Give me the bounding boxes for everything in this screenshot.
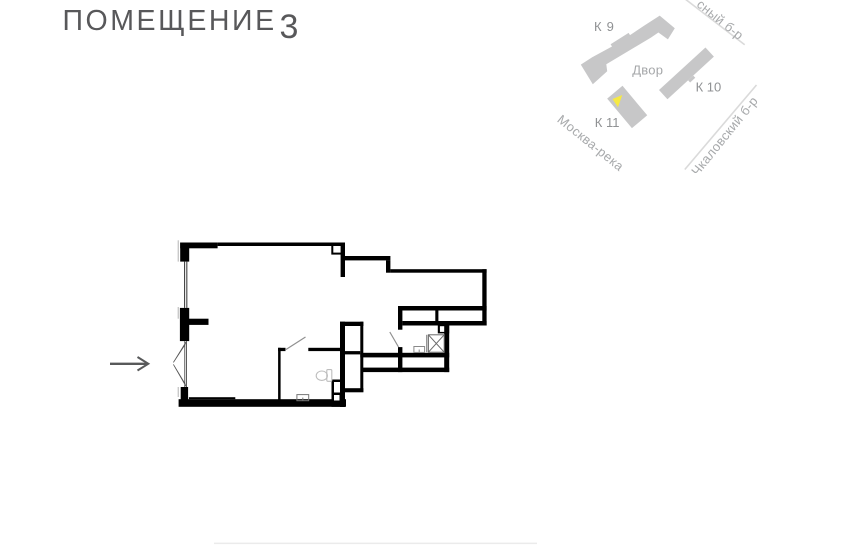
svg-text:Двор: Двор [632, 63, 663, 78]
svg-text:К 11: К 11 [595, 115, 620, 130]
svg-text:Чкаловский б-р: Чкаловский б-р [688, 93, 761, 178]
svg-text:К 9: К 9 [594, 19, 615, 34]
svg-text:сный б-р: сный б-р [694, 0, 747, 43]
svg-text:К 10: К 10 [696, 80, 722, 95]
